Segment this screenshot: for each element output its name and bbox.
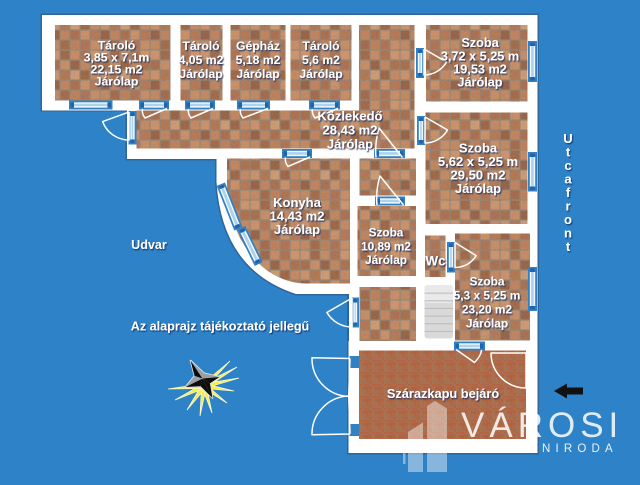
svg-text:Tároló: Tároló xyxy=(182,39,219,53)
svg-text:Wc: Wc xyxy=(425,254,446,269)
svg-text:Udvar: Udvar xyxy=(131,238,167,252)
svg-text:Járólap: Járólap xyxy=(457,76,502,90)
svg-text:Gépház: Gépház xyxy=(236,39,280,53)
svg-text:Közlekedő: Közlekedő xyxy=(317,109,382,124)
svg-text:Járólap: Járólap xyxy=(455,181,501,196)
svg-text:Szoba: Szoba xyxy=(369,226,404,240)
svg-text:3,72 x 5,25 m: 3,72 x 5,25 m xyxy=(441,50,519,64)
svg-text:Járólap: Járólap xyxy=(274,222,320,237)
svg-text:Járólap: Járólap xyxy=(179,67,222,81)
svg-text:Tároló: Tároló xyxy=(302,39,339,53)
svg-text:NIRODA: NIRODA xyxy=(542,443,618,455)
svg-text:Az alaprajz tájékoztató jelleg: Az alaprajz tájékoztató jellegű xyxy=(131,320,309,334)
svg-text:Járólap: Járólap xyxy=(95,75,139,89)
svg-text:Járólap: Járólap xyxy=(236,67,279,81)
svg-text:5,6 m2: 5,6 m2 xyxy=(302,53,340,67)
svg-text:10,89 m2: 10,89 m2 xyxy=(361,240,411,254)
svg-text:Járólap: Járólap xyxy=(327,137,373,152)
svg-text:Szoba: Szoba xyxy=(461,36,499,50)
svg-text:t: t xyxy=(566,239,571,254)
svg-text:Járólap: Járólap xyxy=(299,67,342,81)
svg-text:Szárazkapu bejáró: Szárazkapu bejáró xyxy=(387,386,500,401)
svg-text:Járólap: Járólap xyxy=(365,253,407,267)
svg-text:5,3 x 5,25 m: 5,3 x 5,25 m xyxy=(454,289,521,303)
svg-text:4,05 m2: 4,05 m2 xyxy=(179,53,224,67)
svg-text:5,18 m2: 5,18 m2 xyxy=(236,53,281,67)
svg-text:28,43 m2: 28,43 m2 xyxy=(323,123,378,138)
svg-text:23,20 m2: 23,20 m2 xyxy=(462,303,513,317)
svg-text:Szoba: Szoba xyxy=(469,275,504,289)
svg-text:VÁROSI: VÁROSI xyxy=(461,406,623,445)
svg-text:19,53 m2: 19,53 m2 xyxy=(453,63,507,77)
svg-text:Járólap: Járólap xyxy=(466,317,508,331)
